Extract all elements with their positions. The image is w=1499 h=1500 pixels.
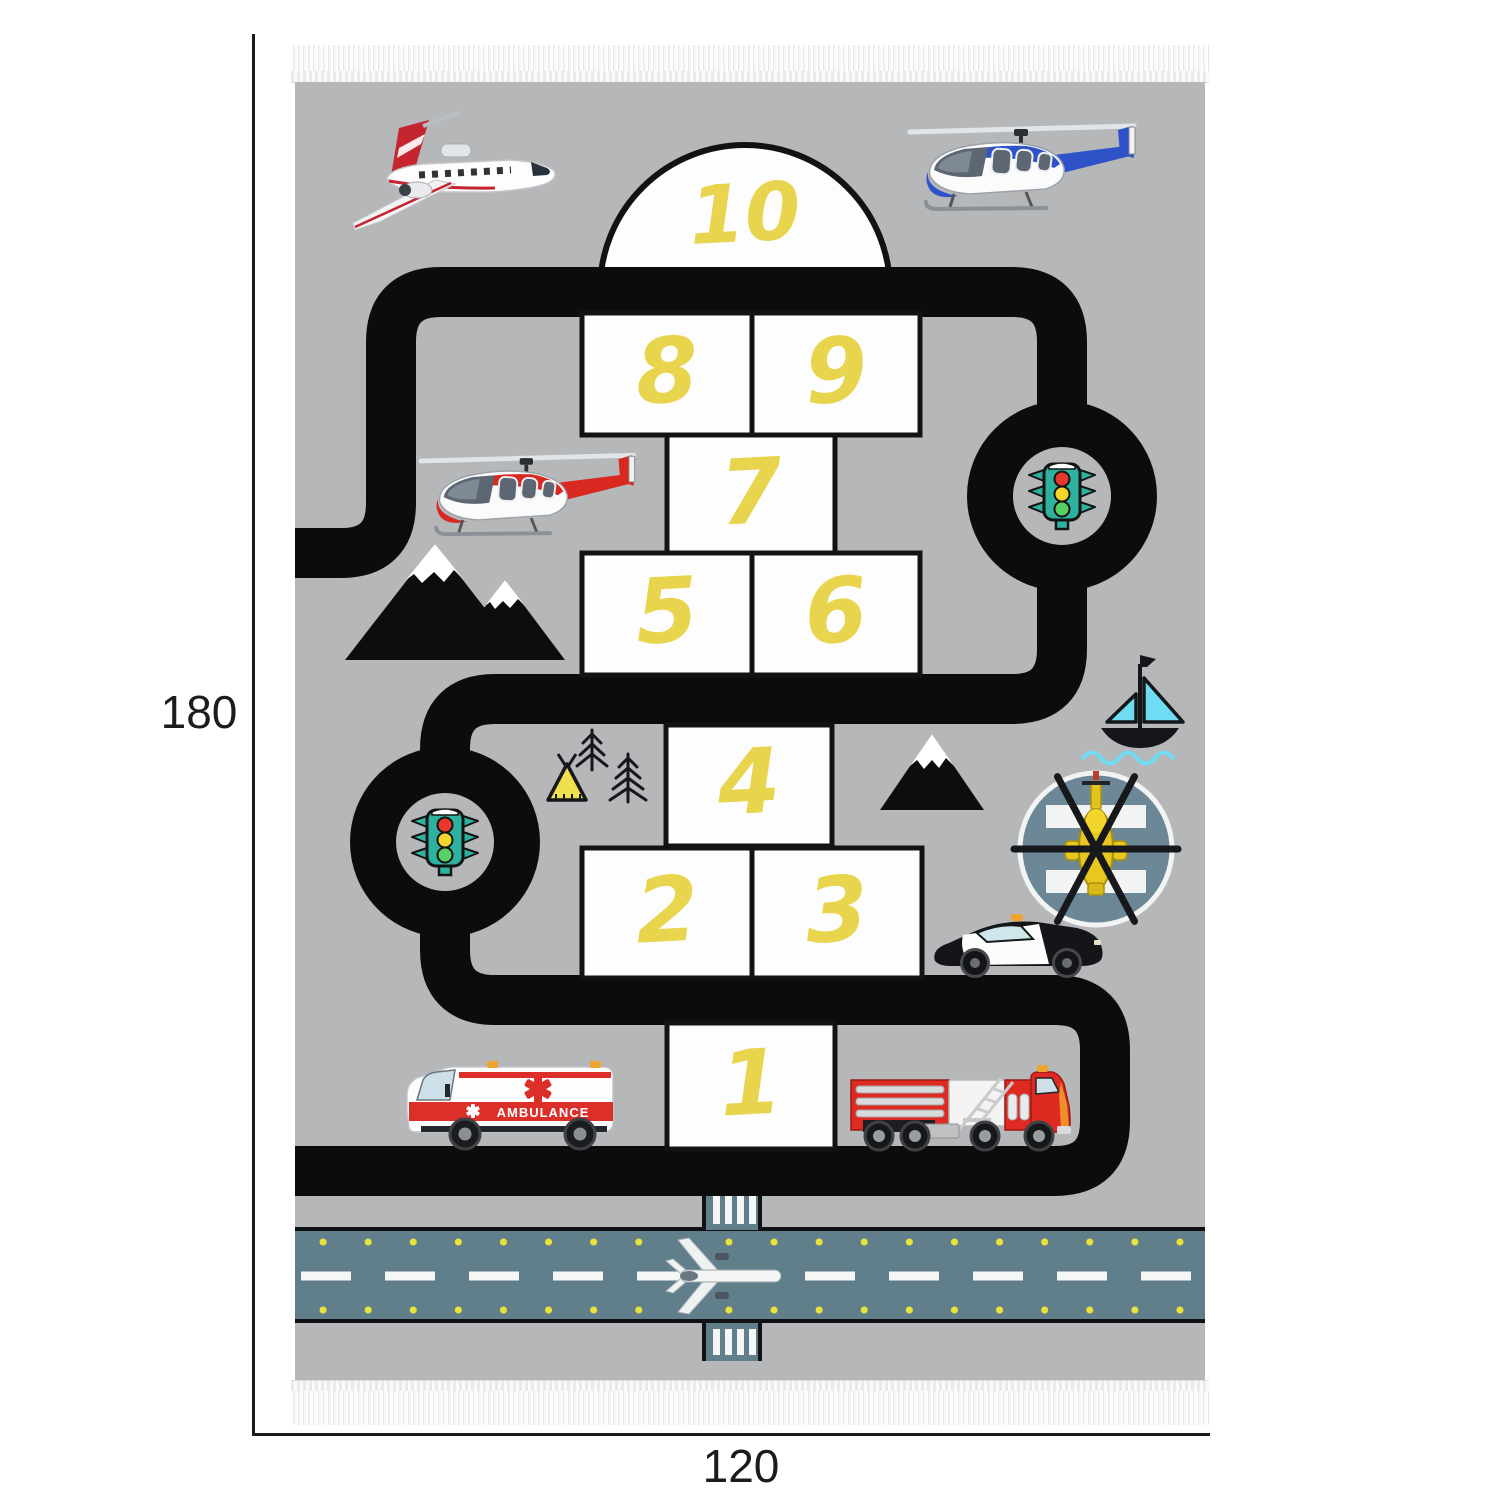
hopscotch-number-7: 7 bbox=[688, 438, 813, 552]
product-dimension-image: 180 120 bbox=[0, 0, 1499, 1500]
sailboat-icon bbox=[1083, 655, 1183, 764]
traffic-light-right-icon bbox=[1029, 463, 1095, 529]
mountain-single-icon bbox=[880, 734, 984, 810]
hopscotch-number-5: 5 bbox=[604, 557, 729, 671]
runway bbox=[295, 1190, 1205, 1361]
fringe-bottom bbox=[291, 1391, 1209, 1425]
width-dimension-label: 120 bbox=[681, 1440, 801, 1492]
tent-icon bbox=[548, 754, 586, 800]
hopscotch-number-1: 1 bbox=[688, 1029, 813, 1143]
hopscotch-number-10: 10 bbox=[662, 158, 827, 274]
jet-airplane-icon bbox=[353, 112, 555, 230]
fire-truck-icon bbox=[851, 1065, 1071, 1150]
height-dimension-label: 180 bbox=[139, 686, 259, 738]
ambulance-text: AMBULANCE bbox=[497, 1105, 590, 1120]
helicopter-red-icon bbox=[421, 455, 635, 534]
width-dimension-line bbox=[252, 1433, 1210, 1436]
pine-trees-icon bbox=[577, 730, 646, 802]
fringe-top bbox=[291, 45, 1209, 71]
rug-surface: AMBULANCE bbox=[295, 82, 1205, 1380]
ambulance-icon: AMBULANCE bbox=[407, 1061, 613, 1149]
helicopter-blue-icon bbox=[910, 126, 1135, 209]
hopscotch-number-2: 2 bbox=[604, 856, 729, 970]
hopscotch-number-9: 9 bbox=[773, 317, 898, 431]
hopscotch-number-6: 6 bbox=[773, 557, 898, 671]
helipad-helicopter-icon bbox=[1014, 771, 1178, 925]
traffic-light-left-icon bbox=[412, 809, 478, 875]
play-rug: AMBULANCE bbox=[295, 45, 1205, 1425]
hopscotch-number-4: 4 bbox=[686, 728, 811, 842]
hopscotch-number-8: 8 bbox=[604, 317, 729, 431]
hopscotch-number-3: 3 bbox=[774, 856, 899, 970]
